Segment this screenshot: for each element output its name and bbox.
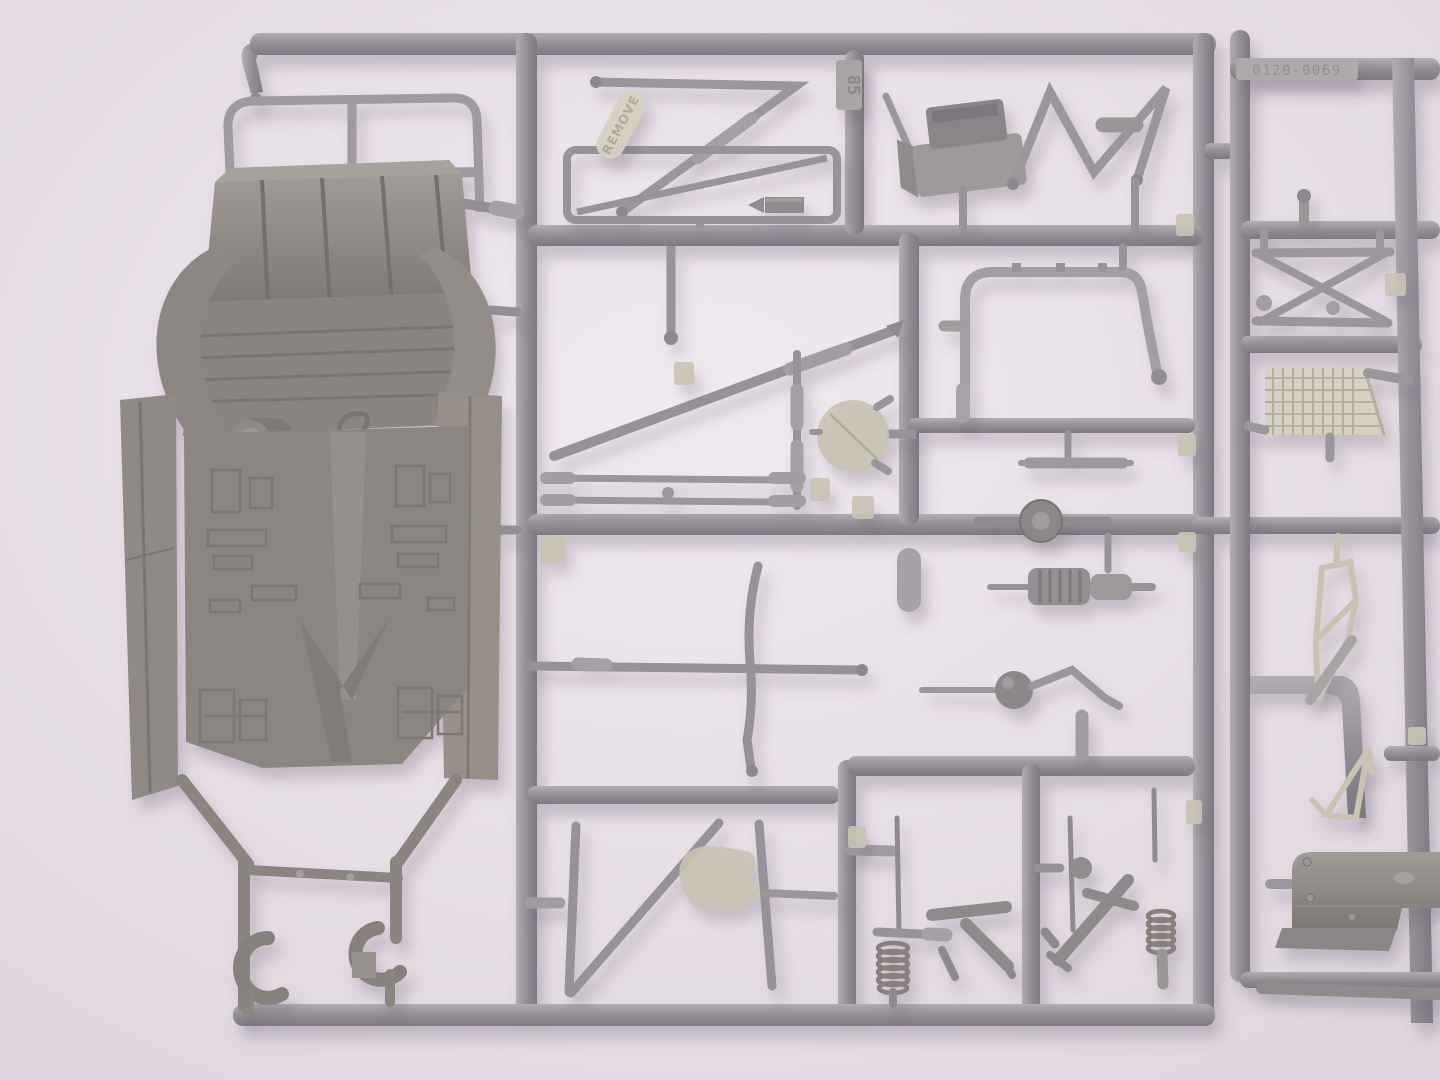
sprue-photo-canvas: REMOVE 85 0120-0069: [0, 0, 1440, 1080]
cargo-box-part: [203, 174, 473, 310]
mold-number-text: 0120-0069: [1252, 63, 1341, 79]
mold-number-plate: 0120-0069: [1236, 59, 1358, 80]
model-kit-sprue-photo: REMOVE 85 0120-0069 Photograp: [0, 0, 1440, 1080]
gate-number-text: 85: [843, 75, 863, 95]
coil-spring-left-part: [878, 943, 908, 993]
gate-number-tag: 85: [836, 60, 863, 110]
long-thin-rod-part: [1262, 988, 1440, 994]
deck-part: [183, 292, 478, 436]
seat-blob-part: [679, 846, 759, 910]
